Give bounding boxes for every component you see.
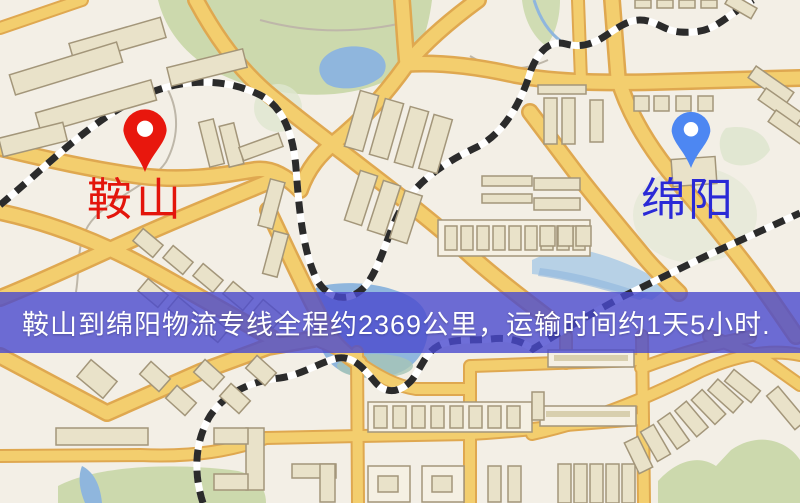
anshan-pin-icon: [121, 105, 169, 172]
map-canvas: 鞍山 绵阳 鞍山到绵阳物流专线全程约2369公里，运输时间约1天5小时.: [0, 0, 800, 503]
route-banner: 鞍山到绵阳物流专线全程约2369公里，运输时间约1天5小时.: [0, 292, 800, 353]
route-banner-text: 鞍山到绵阳物流专线全程约2369公里，运输时间约1天5小时.: [0, 303, 771, 342]
mianyang-label: 绵阳: [641, 177, 735, 222]
street-map-art: [0, 0, 800, 503]
anshan-label: 鞍山: [87, 177, 185, 222]
mianyang-pin-icon: [669, 108, 713, 168]
